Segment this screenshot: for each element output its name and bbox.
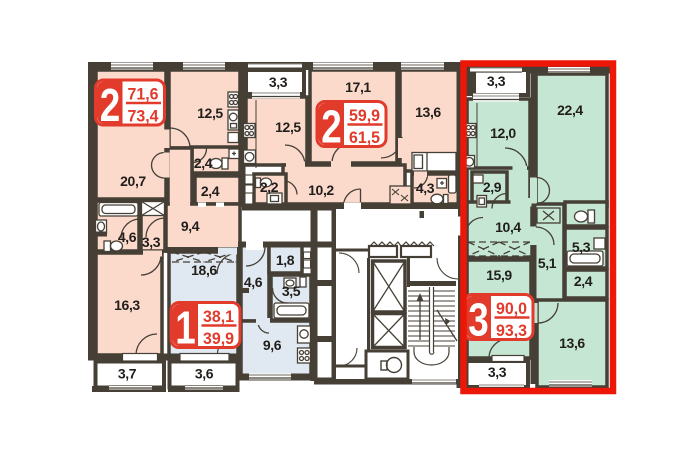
svg-text:18,6: 18,6	[191, 262, 217, 278]
svg-text:3,3: 3,3	[487, 73, 506, 89]
svg-text:10,2: 10,2	[308, 182, 334, 198]
svg-text:9,4: 9,4	[181, 218, 200, 234]
svg-text:90,0: 90,0	[496, 300, 527, 318]
svg-text:1: 1	[175, 302, 196, 354]
svg-text:3,6: 3,6	[195, 366, 214, 382]
svg-text:1,8: 1,8	[276, 252, 295, 268]
svg-text:2,2: 2,2	[260, 179, 279, 195]
svg-text:2: 2	[100, 79, 121, 131]
svg-text:12,5: 12,5	[275, 119, 301, 135]
svg-text:39,9: 39,9	[203, 330, 234, 348]
svg-text:3: 3	[468, 294, 489, 346]
svg-text:12,5: 12,5	[197, 105, 223, 121]
svg-text:10,4: 10,4	[495, 219, 521, 235]
svg-text:4,3: 4,3	[416, 180, 435, 196]
svg-text:13,6: 13,6	[415, 104, 441, 120]
svg-text:3,3: 3,3	[269, 74, 288, 90]
svg-text:3,5: 3,5	[282, 283, 301, 299]
svg-text:12,0: 12,0	[490, 125, 516, 141]
svg-text:17,1: 17,1	[345, 79, 371, 95]
svg-text:2: 2	[321, 101, 342, 153]
svg-text:2,4: 2,4	[201, 183, 220, 199]
svg-text:4,6: 4,6	[118, 229, 137, 245]
svg-text:61,5: 61,5	[349, 129, 380, 147]
svg-text:2,4: 2,4	[574, 273, 593, 289]
svg-text:73,4: 73,4	[128, 108, 160, 126]
svg-text:15,9: 15,9	[486, 267, 512, 283]
svg-text:20,7: 20,7	[120, 173, 146, 189]
svg-text:22,4: 22,4	[557, 102, 583, 118]
svg-text:59,9: 59,9	[349, 107, 380, 125]
svg-text:3,3: 3,3	[142, 234, 161, 250]
svg-text:2,4: 2,4	[194, 155, 213, 171]
svg-text:9,6: 9,6	[263, 337, 282, 353]
svg-text:13,6: 13,6	[559, 335, 585, 351]
svg-text:93,3: 93,3	[496, 322, 527, 340]
svg-text:3,3: 3,3	[488, 364, 507, 380]
svg-text:16,3: 16,3	[114, 297, 140, 313]
svg-text:38,1: 38,1	[203, 308, 234, 326]
svg-text:2,9: 2,9	[483, 179, 502, 195]
svg-text:5,3: 5,3	[572, 239, 591, 255]
svg-text:71,6: 71,6	[128, 86, 159, 104]
svg-text:5,1: 5,1	[538, 255, 557, 271]
svg-text:3,7: 3,7	[118, 366, 137, 382]
svg-text:4,6: 4,6	[244, 274, 263, 290]
